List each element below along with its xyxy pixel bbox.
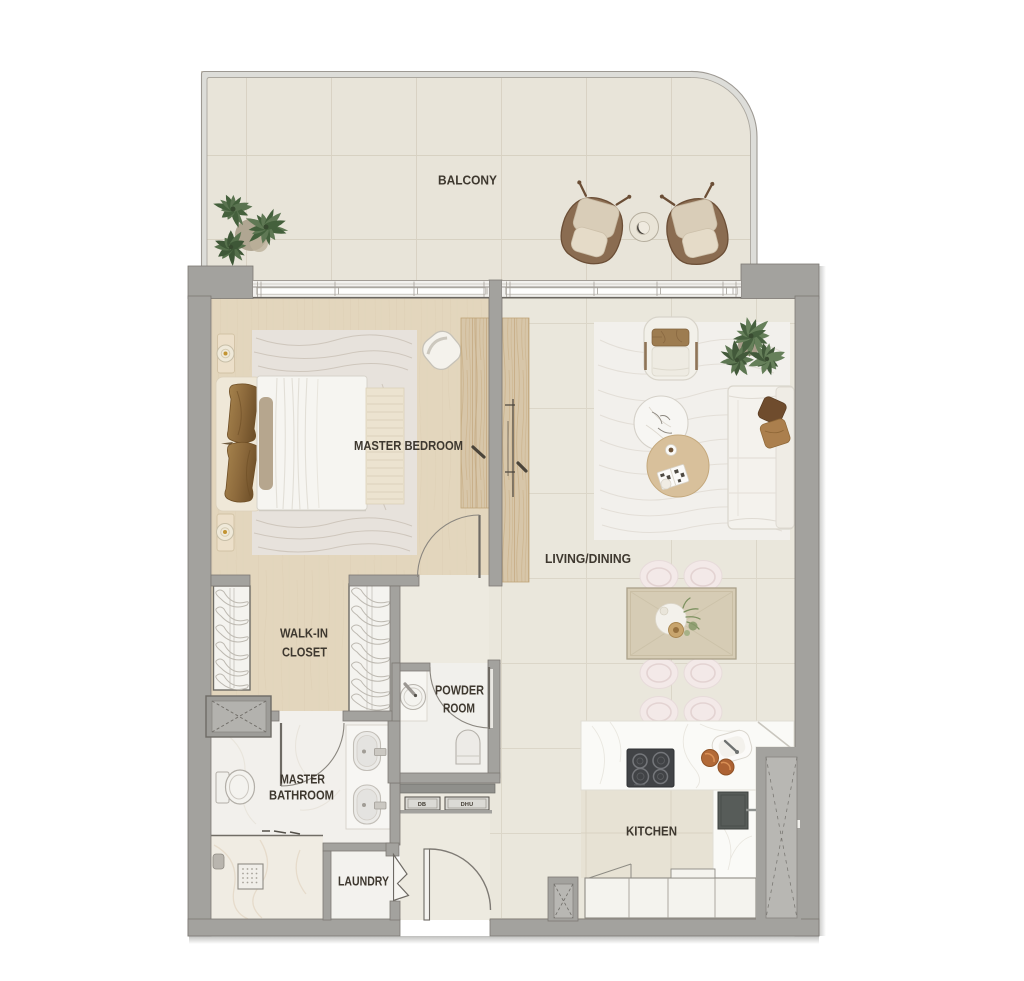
svg-text:LIVING/DINING: LIVING/DINING xyxy=(545,551,631,566)
svg-text:WALK-IN: WALK-IN xyxy=(280,626,328,641)
svg-text:CLOSET: CLOSET xyxy=(282,645,327,660)
svg-text:LAUNDRY: LAUNDRY xyxy=(338,874,389,889)
svg-text:POWDER: POWDER xyxy=(435,683,485,698)
svg-text:BATHROOM: BATHROOM xyxy=(269,788,334,803)
svg-text:BALCONY: BALCONY xyxy=(438,173,497,188)
svg-text:ROOM: ROOM xyxy=(443,701,475,716)
svg-text:KITCHEN: KITCHEN xyxy=(626,824,677,839)
svg-text:DB: DB xyxy=(418,802,426,808)
svg-text:DHU: DHU xyxy=(461,802,474,808)
svg-text:MASTER: MASTER xyxy=(280,772,325,787)
svg-text:MASTER BEDROOM: MASTER BEDROOM xyxy=(354,438,463,453)
